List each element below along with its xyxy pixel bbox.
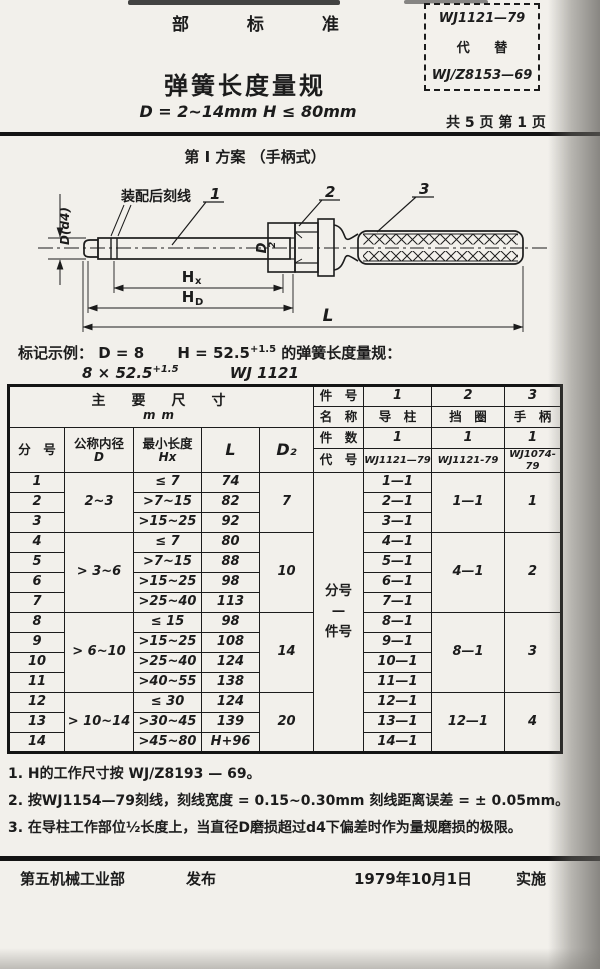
table-cell: 13—1: [364, 713, 432, 733]
header-cell: 1: [364, 386, 432, 407]
table-cell: 98: [202, 573, 260, 593]
table-cell: 14: [260, 613, 314, 693]
spec-range-line: D = 2~14mm H ≤ 80mm: [128, 102, 368, 121]
marking-example-line2: 8 × 52.5+1.5 WJ 1121: [82, 364, 299, 382]
header-cell: 最小长度Hx: [134, 428, 202, 473]
table-cell: 4—1: [432, 533, 505, 613]
table-cell: 20: [260, 693, 314, 753]
table-cell: >7~15: [134, 493, 202, 513]
table-cell: 12: [9, 693, 65, 713]
dim-label-L: L: [323, 306, 334, 326]
table-row: 分 号公称内径D最小长度HxLD₂件 数111: [9, 428, 562, 449]
table-cell: 88: [202, 553, 260, 573]
gauge-technical-drawing: 装配后刻线 1 2 3 D(d4) D 2: [0, 168, 600, 343]
table-row: 主 要 尺 寸mm件 号123: [9, 386, 562, 407]
table-cell: 8—1: [432, 613, 505, 693]
dim-label-Hx-sub: x: [195, 276, 202, 287]
table-cell: 9: [9, 633, 65, 653]
table-cell: 124: [202, 653, 260, 673]
dimension-D2: D 2: [255, 242, 278, 254]
table-cell: ≤ 7: [134, 533, 202, 553]
table-cell: 12—1: [364, 693, 432, 713]
marking-example-line1: 标记示例： D = 8 H = 52.5+1.5 的弹簧长度量规：: [18, 342, 401, 363]
issuing-authority: 第五机械工业部: [20, 868, 125, 889]
dimension-Hx: H x: [114, 261, 283, 293]
table-cell: 108: [202, 633, 260, 653]
table-cell: 10: [9, 653, 65, 673]
table-cell: 10—1: [364, 653, 432, 673]
implementation-word: 实施: [516, 868, 546, 889]
part-number-1: 1: [210, 185, 220, 203]
note-2: 2. 按WJ1154—79刻线，刻线宽度 = 0.15~0.30mm 刻线距离误…: [8, 790, 588, 810]
main-table: 主 要 尺 寸mm件 号123名 称导 柱挡 圈手 柄分 号公称内径D最小长度H…: [7, 384, 563, 754]
header-cell: 名 称: [314, 407, 364, 428]
table-cell: >25~40: [134, 653, 202, 673]
document-page: 部 标 准 WJ1121—79 代 替 WJ/Z8153—69 弹簧长度量规 D…: [0, 0, 600, 969]
table-cell: 6: [9, 573, 65, 593]
table-cell: H+96: [202, 733, 260, 753]
marking-d-value: D = 8: [98, 344, 144, 362]
page-count-label: 共 5 页 第 1 页: [446, 112, 556, 132]
table-cell: > 10~14: [65, 693, 134, 753]
scheme-heading: 第 I 方案 （手柄式）: [150, 146, 360, 167]
table-cell: ≤ 15: [134, 613, 202, 633]
part-number-2: 2: [325, 183, 335, 201]
document-title: 弹簧长度量规: [140, 66, 350, 101]
dimension-D: D(d4): [48, 194, 86, 285]
table-cell: 8: [9, 613, 65, 633]
table-cell: > 6~10: [65, 613, 134, 693]
part-callout-3: 3: [377, 180, 434, 232]
table-cell: 82: [202, 493, 260, 513]
table-cell: 8—1: [364, 613, 432, 633]
marking-designation: 8 × 52.5: [82, 364, 152, 382]
header-cell: 件 数: [314, 428, 364, 449]
footer-rule: [0, 856, 600, 861]
dim-label-HD: H: [182, 288, 195, 306]
table-cell: 113: [202, 593, 260, 613]
table-cell: >15~25: [134, 513, 202, 533]
table-cell: 11—1: [364, 673, 432, 693]
table-cell: >30~45: [134, 713, 202, 733]
table-cell: 5: [9, 553, 65, 573]
table-cell: 124: [202, 693, 260, 713]
table-cell: 74: [202, 473, 260, 493]
table-cell: 7: [9, 593, 65, 613]
dim-label-HD-sub: D: [195, 297, 203, 308]
scribe-callout: 装配后刻线: [111, 188, 191, 236]
marking-h-tolerance: +1.5: [250, 344, 276, 355]
scan-shadow-right: [548, 0, 600, 969]
part-number-3: 3: [419, 180, 429, 198]
table-cell: 5—1: [364, 553, 432, 573]
table-cell: 138: [202, 673, 260, 693]
table-cell: 1—1: [364, 473, 432, 493]
table-cell: >15~25: [134, 573, 202, 593]
header-cell: WJ1121—79: [364, 449, 432, 473]
standard-code-box: WJ1121—79 代 替 WJ/Z8153—69: [424, 3, 540, 91]
table-body: 12~3≤ 7747分号—件号1—11—112>7~15822—13>15~25…: [9, 473, 562, 753]
header-cell: 主 要 尺 寸mm: [9, 386, 314, 428]
scribe-callout-label: 装配后刻线: [120, 188, 191, 205]
table-row: 8> 6~10≤ 1598148—18—13: [9, 613, 562, 633]
table-cell: 2: [9, 493, 65, 513]
table-cell: 92: [202, 513, 260, 533]
table-cell: >45~80: [134, 733, 202, 753]
table-cell: >40~55: [134, 673, 202, 693]
table-cell: 98: [202, 613, 260, 633]
table-cell: 1: [9, 473, 65, 493]
dim-label-D: D(d4): [58, 207, 72, 245]
table-cell: 11: [9, 673, 65, 693]
table-cell: ≤ 7: [134, 473, 202, 493]
table-header: 主 要 尺 寸mm件 号123名 称导 柱挡 圈手 柄分 号公称内径D最小长度H…: [9, 386, 562, 473]
marking-label: 标记示例：: [18, 344, 93, 362]
table-cell: 2~3: [65, 473, 134, 533]
note-1: 1. H的工作尺寸按 WJ/Z8193 — 69。: [8, 763, 588, 783]
marking-h-value: H = 52.5: [177, 344, 250, 362]
header-cell: 导 柱: [364, 407, 432, 428]
table-cell: 分号—件号: [314, 473, 364, 753]
marking-suffix: 的弹簧长度量规：: [281, 344, 401, 362]
table-cell: 7—1: [364, 593, 432, 613]
table-cell: 12—1: [432, 693, 505, 753]
scan-shadow-bottom: [0, 948, 600, 969]
table-cell: 14: [9, 733, 65, 753]
table-cell: 3: [9, 513, 65, 533]
header-cell: 分 号: [9, 428, 65, 473]
table-cell: ≤ 30: [134, 693, 202, 713]
header-rule: [0, 132, 600, 136]
table-row: 4> 3~6≤ 780104—14—12: [9, 533, 562, 553]
marking-standard-code: WJ 1121: [230, 364, 299, 382]
table-cell: 1—1: [432, 473, 505, 533]
table-cell: > 3~6: [65, 533, 134, 613]
header-cell: WJ1121-79: [432, 449, 505, 473]
dim-label-Hx: H: [182, 268, 195, 286]
table-cell: 14—1: [364, 733, 432, 753]
standard-type-label: 部 标 准: [172, 10, 365, 35]
table-cell: 4—1: [364, 533, 432, 553]
header-cell: 代 号: [314, 449, 364, 473]
header-cell: 公称内径D: [65, 428, 134, 473]
standard-code: WJ1121—79: [439, 11, 525, 26]
table-cell: 6—1: [364, 573, 432, 593]
note-3: 3. 在导柱工作部位½长度上，当直径D磨损超过d4下偏差时作为量规磨损的极限。: [8, 817, 588, 837]
replaced-code: WJ/Z8153—69: [432, 68, 533, 83]
table-cell: >15~25: [134, 633, 202, 653]
dim-label-D2-sub: 2: [268, 242, 278, 248]
table-cell: 2—1: [364, 493, 432, 513]
scan-smudge-top: [128, 0, 340, 5]
header-cell: 1: [432, 428, 505, 449]
table-cell: 13: [9, 713, 65, 733]
table-cell: 7: [260, 473, 314, 533]
implementation-date: 1979年10月1日: [354, 868, 472, 889]
table-cell: >7~15: [134, 553, 202, 573]
table-row: 12> 10~14≤ 301242012—112—14: [9, 693, 562, 713]
header-cell: 2: [432, 386, 505, 407]
table-cell: 9—1: [364, 633, 432, 653]
table-cell: 139: [202, 713, 260, 733]
header-cell: 挡 圈: [432, 407, 505, 428]
table-cell: 3—1: [364, 513, 432, 533]
table-cell: 10: [260, 533, 314, 613]
issue-word: 发布: [186, 868, 216, 889]
table-cell: 4: [9, 533, 65, 553]
header-cell: L: [202, 428, 260, 473]
header-cell: D₂: [260, 428, 314, 473]
header-cell: 件 号: [314, 386, 364, 407]
marking-designation-tolerance: +1.5: [152, 364, 178, 375]
header-cell: 1: [364, 428, 432, 449]
table-cell: >25~40: [134, 593, 202, 613]
replaces-label: 代 替: [447, 37, 518, 56]
handle-shape: [358, 231, 523, 264]
table-cell: 80: [202, 533, 260, 553]
table-row: 12~3≤ 7747分号—件号1—11—11: [9, 473, 562, 493]
